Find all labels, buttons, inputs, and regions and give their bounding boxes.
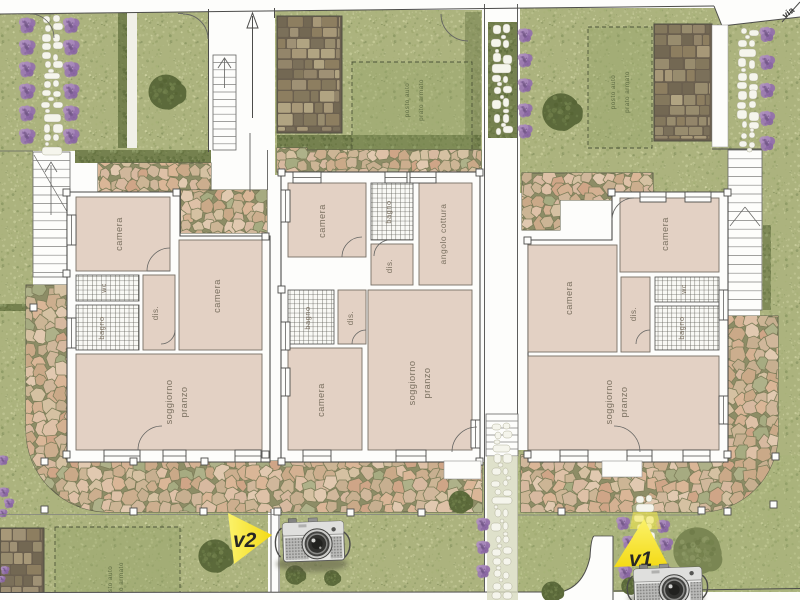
svg-text:camera: camera (564, 281, 574, 315)
svg-text:camera: camera (316, 383, 326, 417)
svg-text:dis.: dis. (629, 307, 638, 321)
svg-text:camera: camera (212, 279, 222, 313)
svg-text:angolo cottura: angolo cottura (438, 204, 448, 265)
svg-text:bagno: bagno (97, 316, 106, 339)
svg-text:soggiorno: soggiorno (407, 361, 417, 406)
svg-text:pranzo: pranzo (179, 386, 189, 417)
svg-text:pranzo: pranzo (619, 386, 629, 417)
svg-text:dis.: dis. (385, 259, 394, 273)
svg-text:bagno: bagno (303, 306, 312, 329)
svg-text:soggiorno: soggiorno (604, 380, 614, 425)
svg-text:wc: wc (101, 283, 108, 294)
svg-text:dis.: dis. (346, 311, 355, 325)
svg-text:prato armato: prato armato (624, 71, 631, 113)
svg-text:v2: v2 (233, 529, 257, 552)
svg-text:camera: camera (114, 217, 124, 251)
svg-text:camera: camera (317, 204, 327, 238)
svg-text:posto auto: posto auto (610, 75, 617, 109)
svg-text:posto auto: posto auto (404, 83, 411, 117)
svg-text:prato armato: prato armato (418, 79, 425, 121)
svg-text:soggiorno: soggiorno (164, 380, 174, 425)
svg-text:camera: camera (660, 217, 670, 251)
svg-text:bagno: bagno (677, 316, 686, 339)
svg-text:dis.: dis. (151, 306, 160, 320)
svg-text:bagno: bagno (384, 200, 393, 223)
svg-text:wc: wc (681, 284, 688, 295)
svg-text:pranzo: pranzo (422, 367, 432, 398)
